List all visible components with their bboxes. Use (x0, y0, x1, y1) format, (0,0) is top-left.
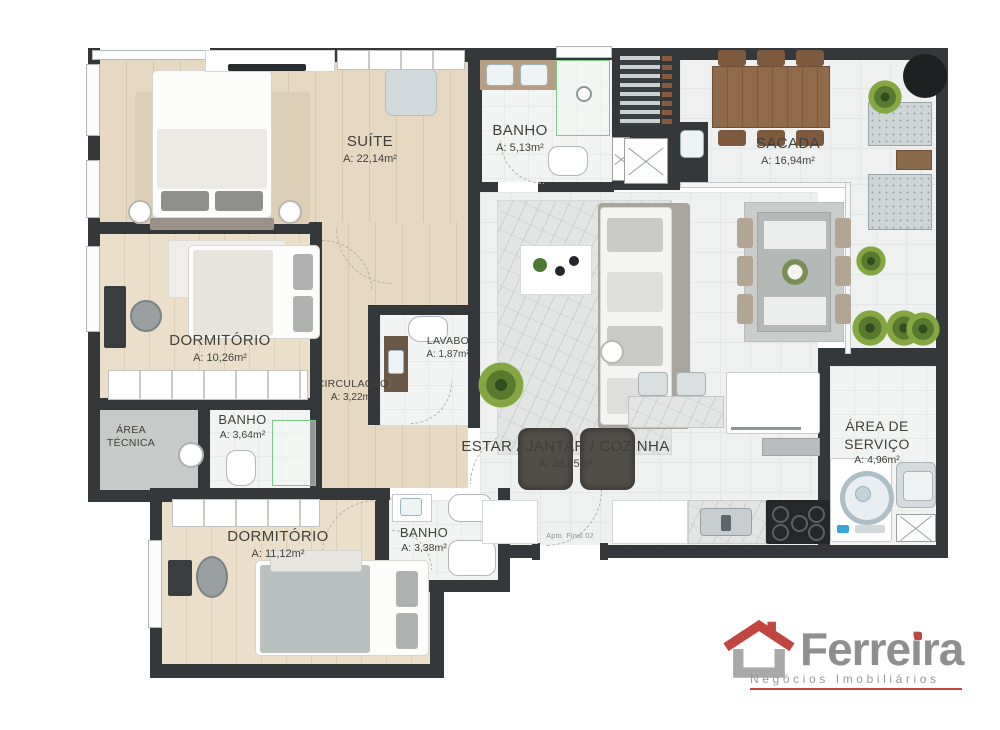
burner (808, 506, 825, 523)
suite-wardrobe (337, 50, 465, 70)
room-label-area-tecnica: ÁREA TÉCNICA (96, 424, 166, 451)
dorm1-chair (130, 300, 162, 332)
room-area: A: 3,38m² (364, 542, 484, 555)
bar-stool (676, 372, 706, 396)
logo-brand: Ferreira (800, 626, 963, 672)
plant (478, 362, 524, 408)
balcony-glass-door (680, 182, 848, 188)
plant (856, 246, 886, 276)
logo-ferreira: Ferreira Negócios Imobiliários (722, 612, 972, 698)
wall (430, 592, 444, 678)
room-label-banho-social: BANHO A: 3,64m² (180, 412, 305, 442)
room-area: A: 3,22m² (300, 392, 405, 405)
suite-bench (150, 218, 274, 230)
room-area: A: 5,13m² (455, 142, 585, 156)
bed-blanket (157, 129, 267, 189)
plant (906, 312, 940, 346)
dining-chair (737, 218, 753, 248)
logo-underline (750, 688, 962, 690)
wall (368, 305, 478, 315)
grill-sink (680, 130, 704, 158)
wall (468, 182, 498, 192)
washing-machine (830, 458, 892, 542)
wall (468, 192, 480, 428)
lounge-side-table (896, 150, 932, 170)
room-label-lavabo: LAVABO A: 1,87m² (408, 335, 488, 362)
bar-stool (638, 372, 668, 396)
coffee-table (520, 245, 592, 295)
bed-blanket (193, 250, 273, 336)
table-plant (533, 258, 547, 272)
room-label-banho-2: BANHO A: 3,38m² (364, 525, 484, 555)
room-name: DORMITÓRIO (198, 528, 358, 547)
balcony-chair (718, 50, 746, 66)
nightstand (278, 200, 302, 224)
room-name: DORMITÓRIO (140, 332, 300, 351)
place-setting (764, 221, 826, 249)
round-table (903, 54, 947, 98)
dorm2-chair (196, 556, 228, 598)
wall (468, 48, 948, 60)
bed-pillow (293, 296, 313, 332)
room-name: SUÍTE (300, 133, 440, 152)
balcony-chair (796, 50, 824, 66)
suite-bed (152, 70, 272, 218)
fridge (726, 372, 820, 434)
dorm2-desk (168, 560, 192, 596)
wall (822, 348, 948, 366)
room-name: ESTAR / JANTAR / COZINHA (448, 438, 683, 457)
grill (620, 56, 660, 126)
room-label-estar-jantar-cozinha: ESTAR / JANTAR / COZINHA A: 38,05m² (448, 438, 683, 472)
fridge-handle (731, 427, 801, 430)
room-label-dormitorio-1: DORMITÓRIO A: 10,26m² (140, 332, 300, 366)
room-area: A: 4,96m² (831, 454, 923, 467)
kitchen-counter (612, 500, 688, 544)
kitchen-sink (700, 508, 752, 536)
entry-opening (540, 545, 600, 558)
room-name: ÁREA TÉCNICA (96, 424, 166, 450)
burner (791, 515, 808, 532)
sink (520, 64, 548, 86)
wall (936, 48, 948, 558)
room-label-area-servico: ÁREA DE SERVIÇO A: 4,96m² (831, 418, 923, 467)
tank-basin (903, 471, 933, 501)
room-name: BANHO (364, 525, 484, 541)
sink (388, 350, 404, 374)
room-name: BANHO (180, 412, 305, 428)
dorm1-desk (104, 286, 126, 348)
balcony-table (712, 66, 830, 128)
nightstand (128, 200, 152, 224)
room-name: CIRCULAÇÃO (300, 378, 405, 391)
sink (486, 64, 514, 86)
balcony-chair (757, 50, 785, 66)
flower-centerpiece (782, 259, 808, 285)
dorm1-wardrobe (108, 370, 308, 400)
door-jamb (532, 543, 540, 560)
room-label-banho-suite: BANHO A: 5,13m² (455, 122, 585, 156)
washer-control (837, 525, 849, 533)
room-name: SACADA (718, 135, 858, 154)
burner (772, 506, 789, 523)
wall (150, 664, 444, 678)
dining-chair (737, 294, 753, 324)
room-label-dormitorio-2: DORMITÓRIO A: 11,12m² (198, 528, 358, 562)
window (86, 246, 100, 332)
wall (538, 182, 614, 192)
sink (400, 498, 422, 516)
elevator-shaft (624, 138, 668, 184)
room-name: ÁREA DE SERVIÇO (831, 418, 923, 453)
table-bowl (555, 266, 565, 276)
wall (368, 305, 380, 425)
room-area: A: 11,12m² (198, 548, 358, 562)
room-area: A: 38,05m² (448, 458, 683, 472)
tv (228, 64, 306, 71)
room-area: A: 22,14m² (300, 153, 440, 167)
burner (772, 524, 789, 541)
room-area: A: 16,94m² (718, 155, 858, 169)
room-label-sacada: SACADA A: 16,94m² (718, 135, 858, 169)
dining-chair (835, 294, 851, 324)
room-label-circulacao: CIRCULAÇÃO A: 3,22m² (300, 378, 405, 405)
window (86, 64, 100, 136)
window (556, 46, 612, 58)
floor-plan: SUÍTE A: 22,14m² BANHO A: 5,13m² SACADA … (0, 0, 1000, 730)
bed-pillow (215, 191, 263, 211)
bed-pillow (396, 571, 418, 607)
kitchen-unit (762, 438, 820, 456)
bed-pillow (396, 613, 418, 649)
table-bowl (569, 256, 579, 266)
lounge-chair (868, 174, 932, 230)
washer-panel (855, 525, 885, 533)
dining-chair (835, 218, 851, 248)
unit-label: Apto. Final 02 (540, 533, 600, 540)
sofa-cushion (607, 272, 663, 312)
breakfast-bar (628, 396, 724, 428)
dorm2-bed (255, 560, 429, 656)
window (86, 160, 100, 218)
plant (852, 310, 888, 346)
room-name: LAVABO (408, 335, 488, 348)
window (148, 540, 162, 628)
washer-drum (855, 486, 871, 502)
shower-head (576, 86, 592, 102)
room-name: BANHO (455, 122, 585, 141)
kitchen-cabinet (482, 500, 538, 544)
dorm1-bed (188, 245, 320, 339)
room-label-suite: SUÍTE A: 22,14m² (300, 133, 440, 167)
dining-table (757, 212, 831, 332)
room-area: A: 10,26m² (140, 352, 300, 366)
side-table (600, 340, 624, 364)
window (92, 50, 210, 60)
plant (868, 80, 902, 114)
duct-shaft (896, 514, 936, 542)
grill-skewer-handles (662, 56, 672, 126)
faucet (721, 515, 731, 531)
place-setting (764, 297, 826, 325)
dining-chair (835, 256, 851, 286)
laundry-tank (896, 462, 936, 508)
logo-brand-text: Ferreira (800, 623, 963, 675)
suite-armchair (385, 68, 437, 116)
logo-i-dot (914, 632, 922, 640)
burner (808, 524, 825, 541)
toilet (226, 450, 256, 486)
cooktop (766, 500, 830, 544)
room-area: A: 3,64m² (180, 429, 305, 442)
room-area: A: 1,87m² (408, 349, 488, 362)
dining-chair (737, 256, 753, 286)
dorm2-wardrobe (172, 499, 320, 527)
bed-pillow (293, 254, 313, 290)
door-jamb (600, 543, 608, 560)
logo-tagline: Negócios Imobiliários (750, 672, 970, 686)
bed-blanket (260, 565, 370, 653)
bed-pillow (161, 191, 209, 211)
sofa-cushion (607, 218, 663, 252)
pedestal-sink (178, 442, 204, 468)
